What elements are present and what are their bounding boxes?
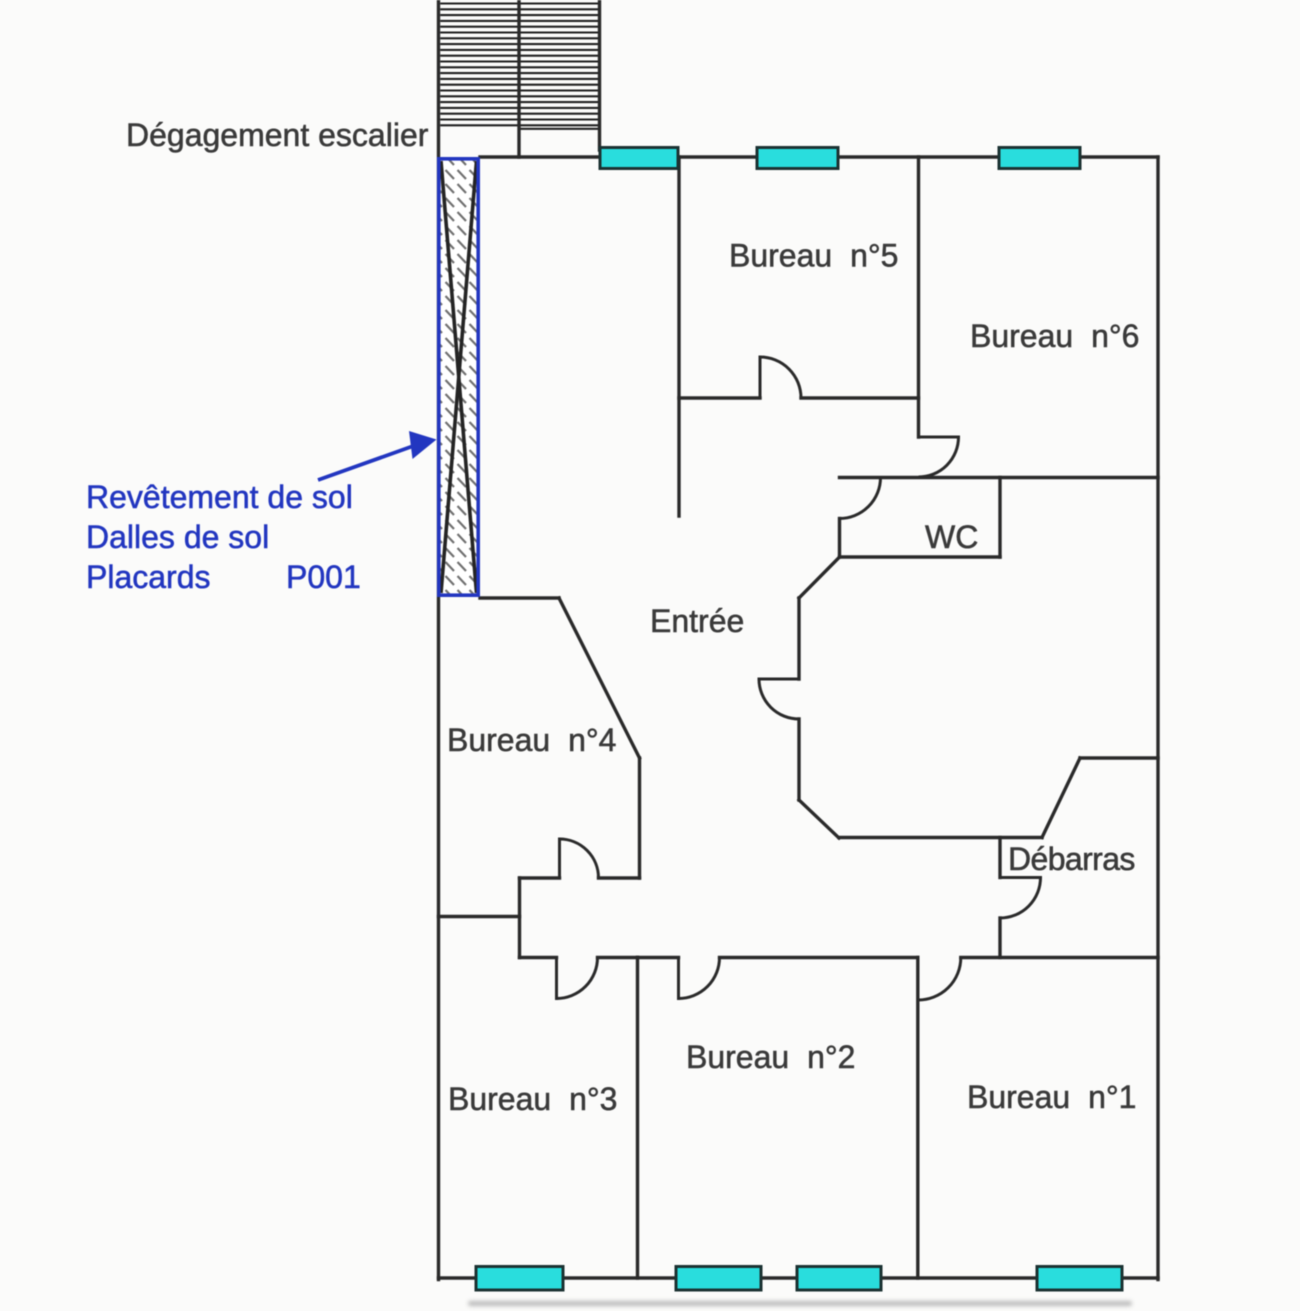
svg-text:Bureau n°1: Bureau n°1 [967, 1079, 1136, 1115]
svg-text:Débarras: Débarras [1008, 841, 1135, 877]
svg-text:Bureau n°5: Bureau n°5 [729, 238, 898, 274]
svg-text:Entrée: Entrée [650, 603, 744, 639]
svg-text:Bureau n°2: Bureau n°2 [686, 1039, 855, 1075]
svg-text:Placards: Placards [86, 559, 211, 595]
svg-text:P001: P001 [286, 559, 361, 595]
svg-text:Bureau n°3: Bureau n°3 [448, 1081, 617, 1117]
svg-text:Bureau n°4: Bureau n°4 [447, 722, 616, 758]
svg-text:WC: WC [925, 519, 978, 555]
svg-text:Bureau n°6: Bureau n°6 [970, 318, 1139, 354]
svg-text:Revêtement de sol: Revêtement de sol [86, 479, 353, 515]
svg-text:Dégagement escalier: Dégagement escalier [126, 117, 429, 153]
svg-text:Dalles de sol: Dalles de sol [86, 519, 269, 555]
